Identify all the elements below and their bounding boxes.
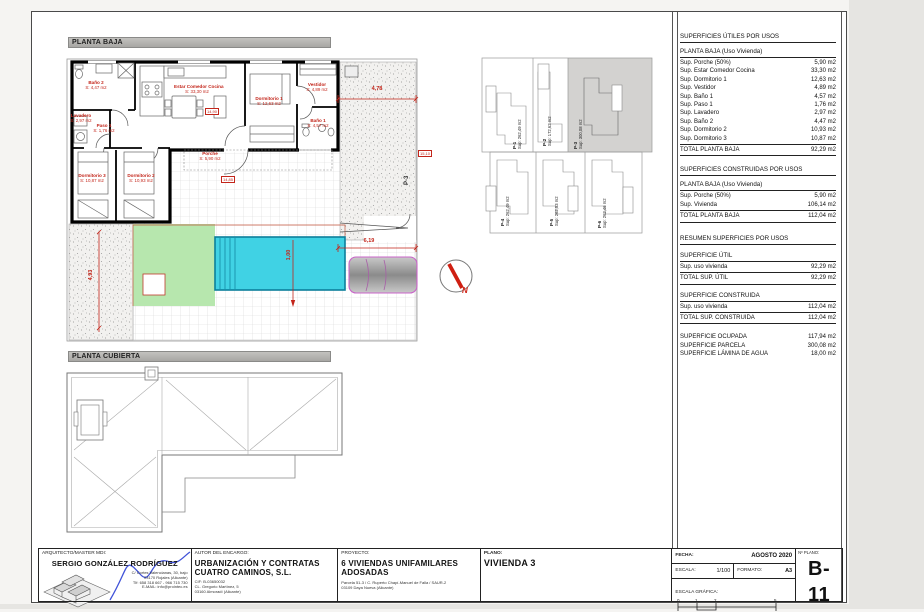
titleblock-architect: ARQUITECTO/MASTER MDI: SERGIO GONZÁLEZ R… <box>39 549 192 601</box>
parcel-label: P-2 Sup: 172,62 m2 <box>542 116 552 146</box>
table-row: Sup. Vivienda106,14 m2 <box>680 201 836 209</box>
table-row: Sup. Dormitorio 310,87 m2 <box>680 135 836 143</box>
table-row: SUPERFICIE PARCELA300,08 m2 <box>680 342 836 350</box>
room-label: Dormitorio 3S: 10,87 m2 <box>69 173 115 183</box>
svg-text:5: 5 <box>774 598 777 603</box>
chimney <box>145 367 158 380</box>
plano-name: VIVIENDA 3 <box>484 559 669 568</box>
gate-label: P-3 <box>404 176 410 185</box>
title-block: ARQUITECTO/MASTER MDI: SERGIO GONZÁLEZ R… <box>38 548 843 602</box>
table-row: Sup. Dormitorio 112,63 m2 <box>680 76 836 84</box>
table-title: RESUMEN SUPERFICIES POR USOS <box>680 234 836 243</box>
room-label: Estar Comedor CocinaS: 33,30 m2 <box>174 84 220 94</box>
room-label: Baño 1S: 4,57 m2 <box>295 118 341 128</box>
table-row: Sup. Baño 14,57 m2 <box>680 93 836 101</box>
north-label: N <box>462 286 468 295</box>
table-row: Sup. Baño 24,47 m2 <box>680 118 836 126</box>
titleblock-meta: FECHA: AGOSTO 2020 ESCALA: 1/100 FORMATO… <box>672 549 796 601</box>
table-title: SUPERFICIES ÚTILES POR USOS <box>680 32 836 41</box>
titleblock-client: AUTOR DEL ENCARGO: URBANIZACIÓN Y CONTRA… <box>192 549 339 601</box>
parcel-label: P-4 Sup: 262,49 m2 <box>500 196 510 226</box>
table-total-row: TOTAL PLANTA BAJA112,04 m2 <box>680 212 836 220</box>
table-subtitle: SUPERFICIE CONSTRUIDA <box>680 291 836 300</box>
room-label: LavaderoS: 2,97 m2 <box>58 113 104 123</box>
pool <box>215 237 345 290</box>
pool-equipment-box <box>143 274 165 295</box>
parcel-label: P-6 Sup: 262,46 m2 <box>597 198 607 228</box>
table-title: SUPERFICIES CONSTRUIDAS POR USOS <box>680 165 836 174</box>
titleblock-plano: PLANO: VIVIENDA 3 <box>481 549 673 601</box>
dimension-pool: 1,00 <box>286 235 292 275</box>
roof-plan <box>67 367 342 532</box>
skylight <box>74 400 107 440</box>
room-label: Baño 2S: 4,47 m2 <box>73 80 119 90</box>
table-row: Sup. Vestidor4,89 m2 <box>680 84 836 92</box>
table-row: Sup. Estar Comedor Cocina33,30 m2 <box>680 67 836 75</box>
section-header-planta-baja: PLANTA BAJA <box>68 37 331 48</box>
table-total-row: TOTAL SUP. ÚTIL92,29 m2 <box>680 274 836 282</box>
table-row: Sup. Dormitorio 210,93 m2 <box>680 126 836 134</box>
room-label: Dormitorio 1S: 12,63 m2 <box>246 96 292 106</box>
level-marker: 14,85 <box>221 176 235 183</box>
table-subtitle: PLANTA BAJA (Uso Vivienda) <box>680 180 836 189</box>
svg-text:0: 0 <box>677 598 680 603</box>
gravel-left <box>69 224 133 340</box>
level-marker: 14,90 <box>205 108 219 115</box>
table-subtitle: SUPERFICIE ÚTIL <box>680 251 836 260</box>
section-header-planta-cubierta: PLANTA CUBIERTA <box>68 351 331 362</box>
titleblock-project: PROYECTO: 6 VIVIENDAS UNIFAMILARES ADOSA… <box>338 549 481 601</box>
table-total-row: TOTAL PLANTA BAJA92,29 m2 <box>680 146 836 154</box>
escala-value: 1/100 <box>717 568 731 574</box>
scale-bar: 0 1 2 5 <box>675 598 781 611</box>
parcel-label: P-5 Sup: 262,53 m2 <box>549 196 559 226</box>
room-label: VestidorS: 4,89 m2 <box>294 82 340 92</box>
room-label: Paso 1S: 1,76 m2 <box>81 123 127 133</box>
table-row: Sup. Porche (50%)5,90 m2 <box>680 59 836 67</box>
plan-number: B-11 <box>798 556 840 608</box>
room-label: Dormitorio 2S: 10,93 m2 <box>118 173 164 183</box>
surface-tables: SUPERFICIES ÚTILES POR USOS PLANTA BAJA … <box>680 32 836 359</box>
dimension-top: 4,78 <box>357 86 397 92</box>
car <box>349 257 417 293</box>
fecha-value: AGOSTO 2020 <box>751 553 792 559</box>
table-row: Sup. Porche (50%)5,90 m2 <box>680 192 836 200</box>
svg-text:2: 2 <box>714 598 717 603</box>
table-row: Sup. uso vivienda92,29 m2 <box>680 263 836 271</box>
dimension-gate: 6,19 <box>349 238 389 244</box>
table-row: SUPERFICIE OCUPADA117,94 m2 <box>680 333 836 341</box>
level-marker: 15,10 <box>418 150 432 157</box>
titleblock-number: Nº PLANO: B-11 <box>796 549 842 601</box>
parcel-label: P-1 Sup: 262,49 m2 <box>512 119 522 149</box>
room-label: PorcheS: 5,90 m2 <box>187 151 233 161</box>
parcel-label: P-3 Sup: 300,08 m2 <box>573 119 583 149</box>
dimension-left: 4,93 <box>88 255 94 295</box>
table-subtitle: PLANTA BAJA (Uso Vivienda) <box>680 47 836 56</box>
formato-value: A3 <box>785 568 792 574</box>
table-row: SUPERFICIE LÁMINA DE AGUA18,00 m2 <box>680 350 836 358</box>
table-total-row: TOTAL SUP. CONSTRUIDA112,04 m2 <box>680 314 836 322</box>
table-row: Sup. Paso 11,76 m2 <box>680 101 836 109</box>
table-row: Sup. uso vivienda112,04 m2 <box>680 303 836 311</box>
table-row: Sup. Lavadero2,97 m2 <box>680 109 836 117</box>
architect-name: SERGIO GONZÁLEZ RODRÍGUEZ <box>42 559 188 568</box>
svg-text:1: 1 <box>695 598 698 603</box>
